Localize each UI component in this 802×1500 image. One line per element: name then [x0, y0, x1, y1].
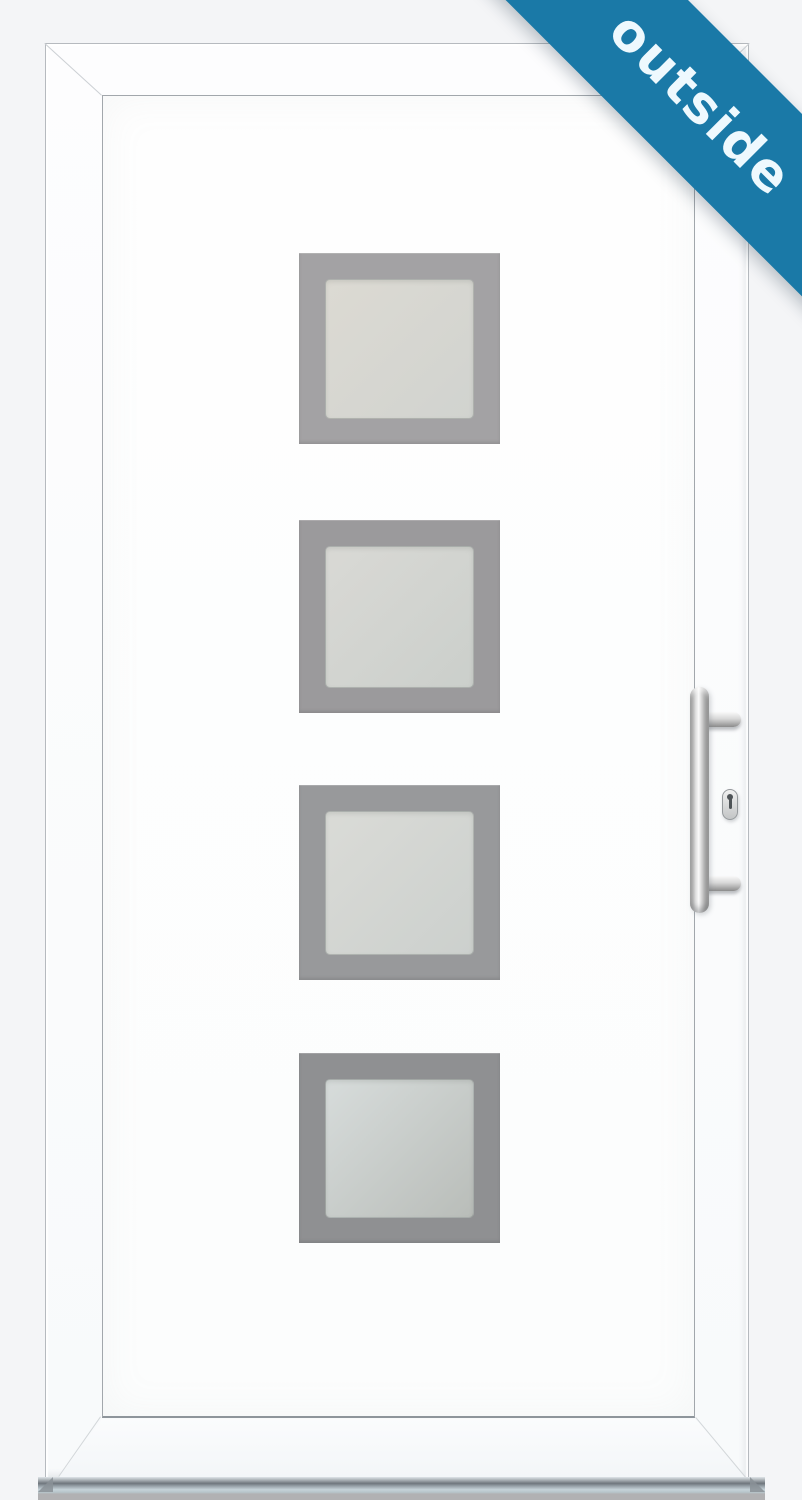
- frosted-glass: [325, 546, 474, 688]
- lock-cylinder: [722, 789, 738, 820]
- frosted-glass: [325, 279, 474, 419]
- door-handle-bar: [690, 687, 709, 913]
- glass-panel-2: [299, 520, 500, 713]
- front-door-product-photo: outside: [0, 0, 802, 1500]
- glass-panel-4: [299, 1053, 500, 1243]
- threshold-profile: [38, 1477, 765, 1500]
- door-sill: [46, 1419, 748, 1477]
- frosted-glass: [325, 1079, 474, 1218]
- glass-panel-1: [299, 253, 500, 444]
- threshold-end-cap: [750, 1477, 765, 1492]
- frosted-glass: [325, 811, 474, 955]
- threshold-end-cap: [38, 1477, 53, 1492]
- glass-panel-3: [299, 785, 500, 980]
- keyhole-slot: [729, 798, 732, 809]
